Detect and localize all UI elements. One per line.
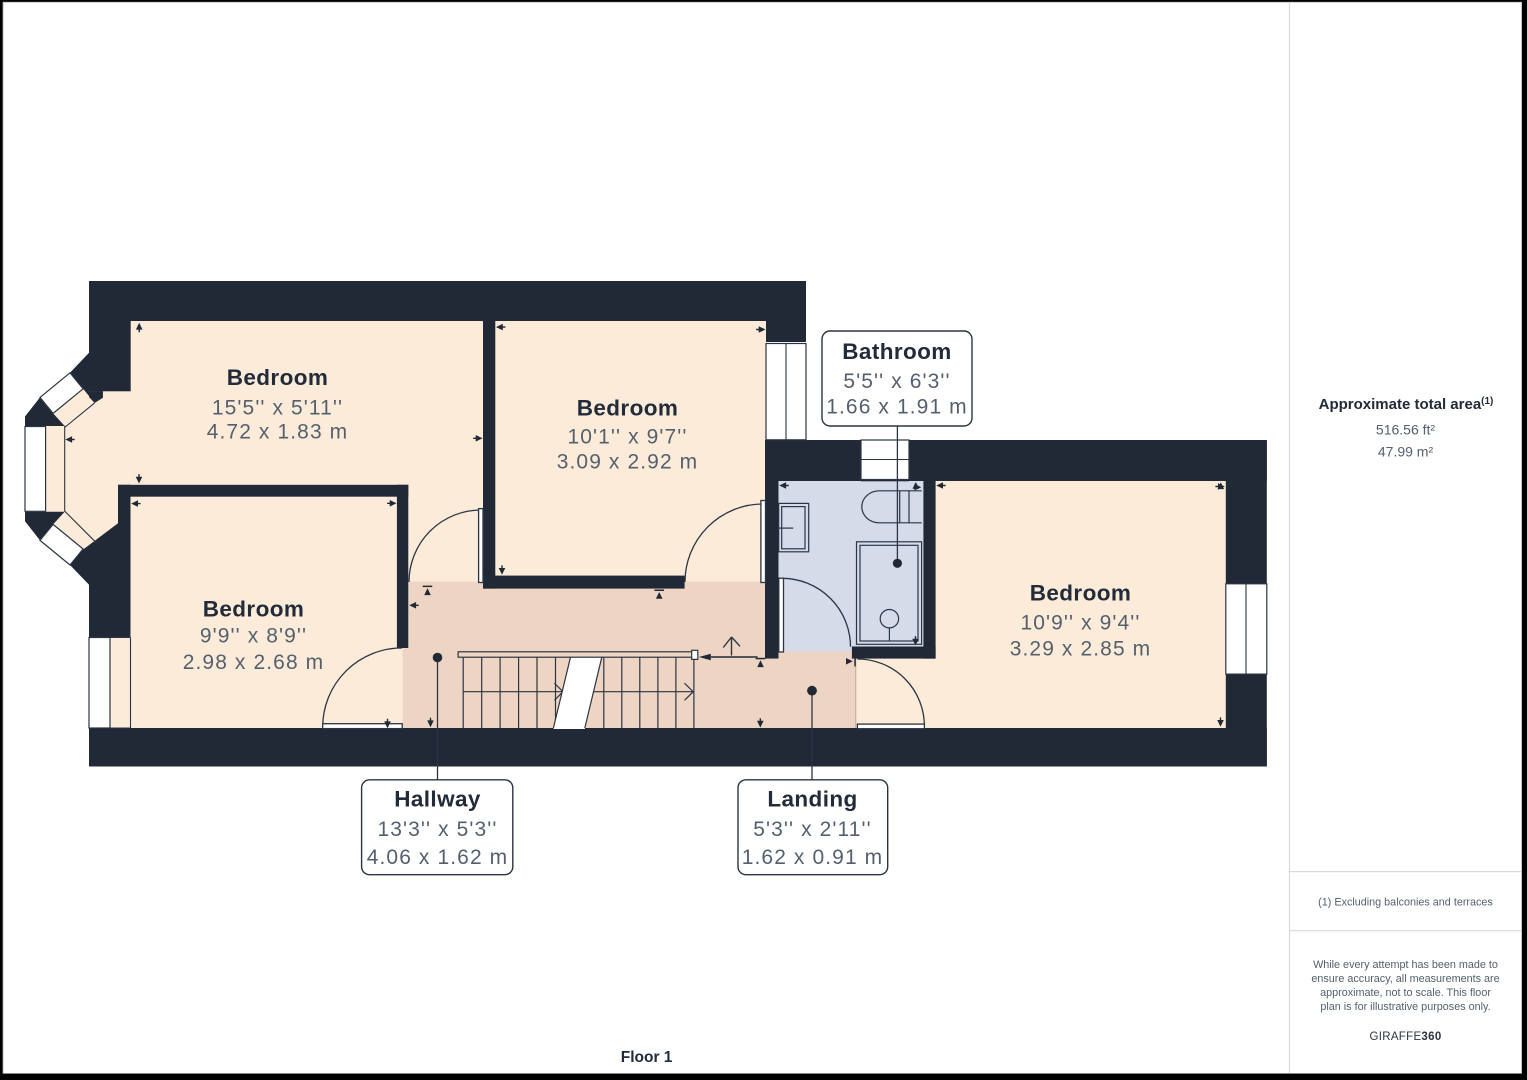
svg-text:Bedroom: Bedroom: [227, 365, 329, 390]
svg-text:13'3'' x 5'3'': 13'3'' x 5'3'': [377, 818, 497, 841]
svg-text:Approximate total area(1): Approximate total area(1): [1319, 396, 1494, 413]
svg-text:3.29 x 2.85 m: 3.29 x 2.85 m: [1010, 638, 1152, 661]
svg-text:3.09 x 2.92 m: 3.09 x 2.92 m: [557, 451, 699, 474]
svg-text:Bedroom: Bedroom: [1030, 581, 1132, 606]
svg-text:Bathroom: Bathroom: [842, 339, 951, 364]
svg-text:10'9'' x 9'4'': 10'9'' x 9'4'': [1020, 612, 1140, 635]
svg-text:plan is for illustrative purpo: plan is for illustrative purposes only.: [1320, 1001, 1490, 1013]
svg-text:GIRAFFE360: GIRAFFE360: [1369, 1031, 1441, 1043]
svg-text:9'9'' x 8'9'': 9'9'' x 8'9'': [200, 625, 307, 648]
svg-text:5'3'' x 2'11'': 5'3'' x 2'11'': [753, 818, 871, 841]
svg-text:Bedroom: Bedroom: [577, 396, 679, 421]
svg-text:10'1'' x 9'7'': 10'1'' x 9'7'': [567, 426, 687, 449]
svg-text:approximate, not to scale. Thi: approximate, not to scale. This floor: [1320, 987, 1491, 999]
svg-text:15'5'' x 5'11'': 15'5'' x 5'11'': [212, 397, 343, 420]
svg-text:1.66 x 1.91 m: 1.66 x 1.91 m: [826, 396, 968, 419]
svg-text:(1) Excluding balconies and te: (1) Excluding balconies and terraces: [1318, 897, 1493, 909]
svg-text:4.06 x 1.62 m: 4.06 x 1.62 m: [367, 846, 509, 869]
svg-text:47.99 m²: 47.99 m²: [1378, 444, 1434, 460]
svg-text:Landing: Landing: [767, 787, 857, 812]
svg-text:5'5'' x 6'3'': 5'5'' x 6'3'': [843, 370, 950, 393]
svg-text:ensure accuracy, all measureme: ensure accuracy, all measurements are: [1311, 973, 1499, 985]
svg-text:516.56 ft²: 516.56 ft²: [1376, 422, 1435, 438]
svg-text:While every attempt has been m: While every attempt has been made to: [1313, 959, 1498, 971]
svg-text:Bedroom: Bedroom: [203, 597, 305, 622]
svg-text:4.72 x 1.83 m: 4.72 x 1.83 m: [207, 421, 349, 444]
svg-text:2.98 x 2.68 m: 2.98 x 2.68 m: [183, 651, 325, 674]
svg-text:Floor 1: Floor 1: [621, 1049, 673, 1066]
svg-text:Hallway: Hallway: [394, 787, 481, 812]
svg-text:1.62 x 0.91 m: 1.62 x 0.91 m: [742, 846, 884, 869]
